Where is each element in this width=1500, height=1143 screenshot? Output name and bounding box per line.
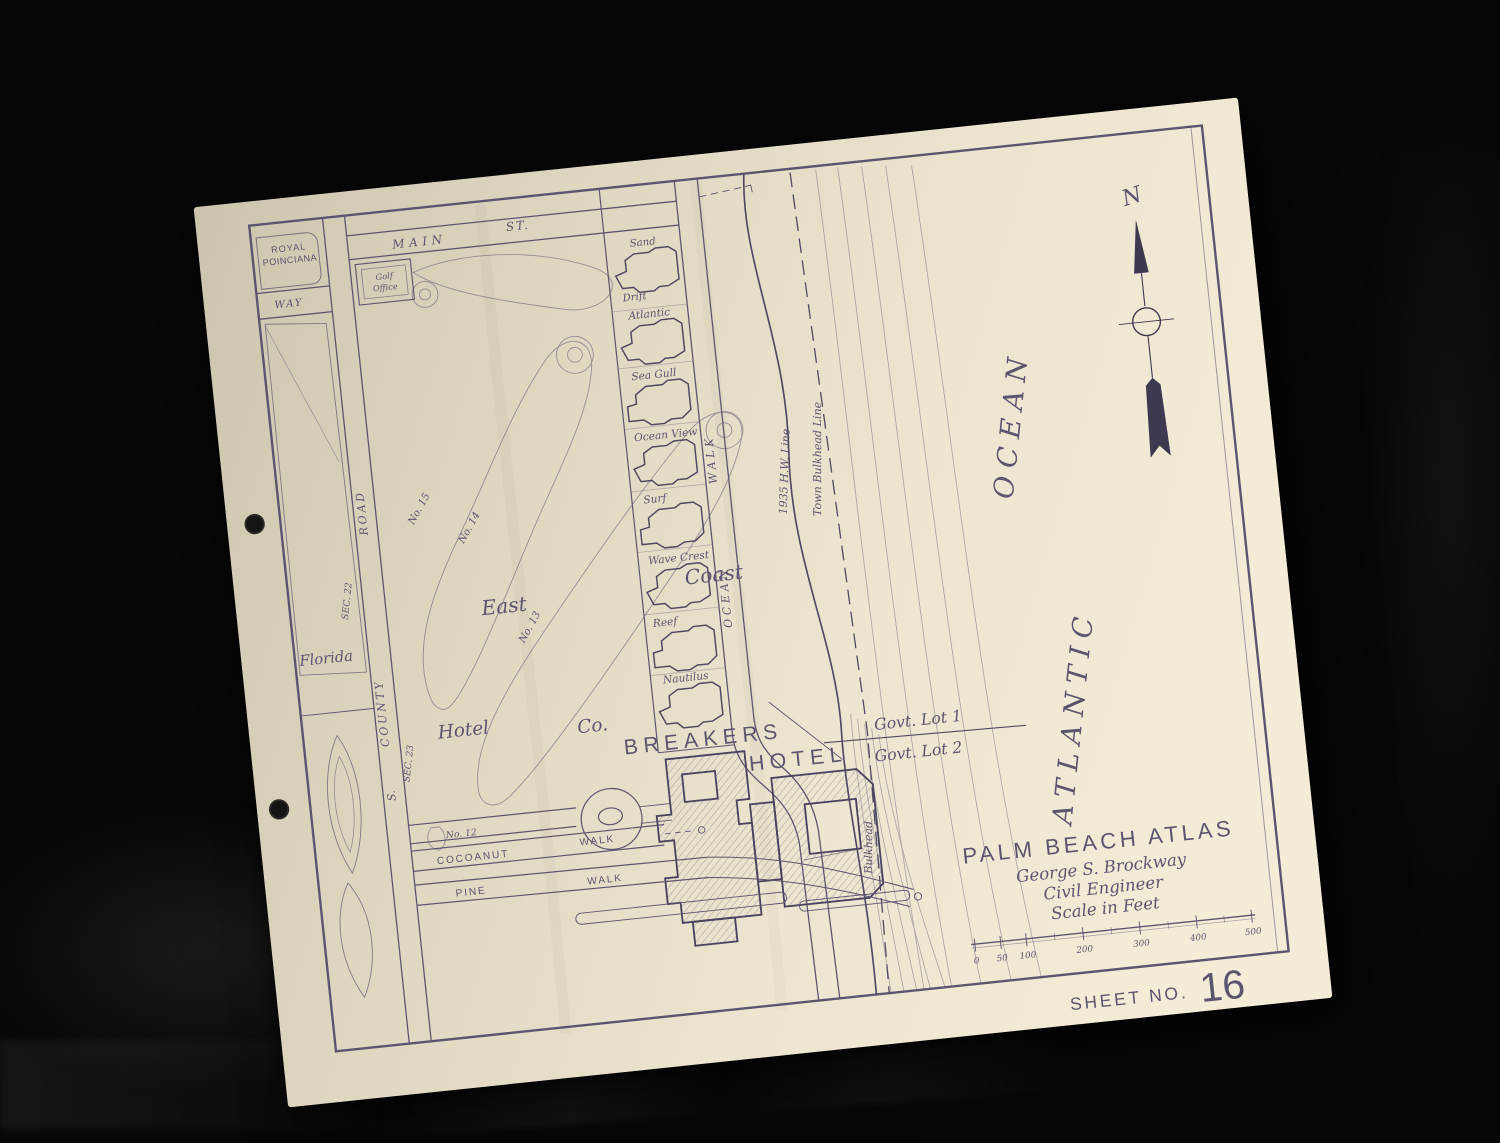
atlantic-label: ATLANTIC (1045, 607, 1101, 829)
county-road-label-county: COUNTY (372, 679, 392, 748)
punch-hole (269, 799, 289, 819)
scale-tick-100: 100 (1019, 950, 1037, 962)
cottage-sea-gull-label: Sea Gull (631, 367, 677, 384)
sec-22-label: SEC. 22 (340, 582, 355, 620)
sheet-no-label: SHEET NO. (1069, 982, 1189, 1014)
east-coast-hotel-co-label-co: Co. (576, 714, 609, 738)
scale-tick-300: 300 (1133, 938, 1151, 950)
cottage-nautilus-label: Nautilus (661, 670, 709, 687)
cottage-surf-label: Surf (643, 492, 669, 507)
north-arrow (1108, 217, 1188, 460)
golf-hole-12-label: No. 12 (444, 827, 477, 841)
cocoanut-walk-label-1: COCOANUT (436, 849, 509, 868)
map-drawing: ROYAL POINCIANA WAY Florida SEC. 22 ROAD… (194, 98, 1333, 1108)
scale-tick-200: 200 (1075, 944, 1094, 956)
golf-hole-15-label: No. 15 (406, 491, 433, 527)
scale-tick-50: 50 (996, 953, 1009, 964)
pine-walk-label-1: PINE (455, 885, 487, 899)
golf-office-label-1: Golf (375, 270, 395, 282)
sec-23-label: SEC. 23 (401, 744, 416, 782)
atlas-sheet-paper: ROYAL POINCIANA WAY Florida SEC. 22 ROAD… (194, 98, 1333, 1108)
hw-line-label: 1935 H.W. Line (777, 428, 793, 515)
main-st-label-2: ST. (505, 218, 530, 234)
royal-poinciana-label-line1: ROYAL (271, 241, 307, 255)
pine-walk-label-2: WALK (587, 873, 624, 888)
scale-tick-0: 0 (973, 956, 980, 967)
ocean-label: OCEAN (987, 348, 1035, 501)
scale-tick-500: 500 (1245, 927, 1263, 939)
cottage-ocean-view-label: Ocean View (634, 426, 698, 445)
east-coast-hotel-co-label-hotel: Hotel (436, 717, 490, 743)
east-coast-hotel-co-label-east: East (479, 592, 528, 621)
scale-tick-400: 400 (1189, 932, 1208, 944)
way-street-label: WAY (274, 297, 304, 311)
cottage-sand-drift-label-2: Drift (621, 291, 648, 305)
town-bulkhead-line-label: Town Bulkhead Line (811, 401, 824, 516)
punch-hole (245, 514, 265, 534)
cocoanut-walk-label-2: WALK (579, 834, 616, 849)
cottage-sand-drift-label-1: Sand (629, 236, 656, 250)
cottage-reef-label: Reef (651, 615, 680, 630)
golf-hole-14-label: No. 14 (456, 510, 483, 546)
sheet-number: 16 (1198, 961, 1248, 1012)
left-lots-and-county-road (249, 216, 431, 1052)
royal-poinciana-label-line2: POINCIANA (262, 252, 318, 268)
main-st-label-1: MAIN (391, 232, 448, 252)
county-road-label-s: S. (385, 790, 399, 802)
table-glare (1360, 150, 1500, 950)
florida-label: Florida (298, 647, 354, 670)
govt-lot-1-label: Govt. Lot 1 (873, 706, 962, 734)
golf-office-label-2: Office (372, 281, 398, 294)
north-n-label: N (1118, 181, 1146, 212)
